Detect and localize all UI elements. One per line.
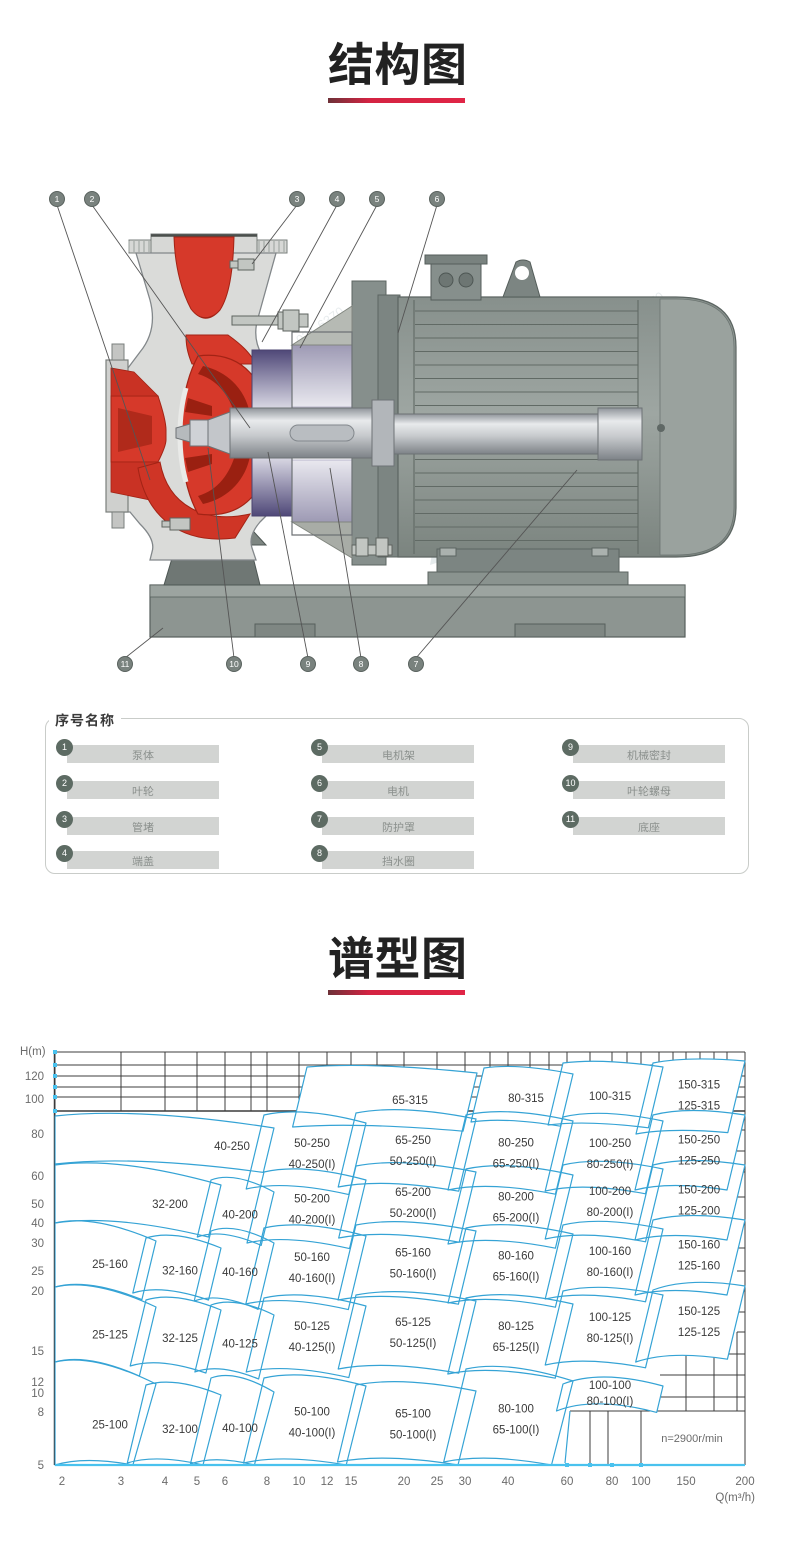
svg-text:150-250: 150-250 bbox=[678, 1135, 720, 1147]
svg-text:100: 100 bbox=[631, 1476, 650, 1488]
svg-text:125-200: 125-200 bbox=[678, 1206, 720, 1218]
svg-text:Q(m³/h): Q(m³/h) bbox=[715, 1492, 755, 1504]
svg-text:25: 25 bbox=[431, 1476, 444, 1488]
svg-text:50-125(I): 50-125(I) bbox=[390, 1338, 437, 1350]
svg-text:8: 8 bbox=[264, 1476, 270, 1488]
svg-text:150-200: 150-200 bbox=[678, 1185, 720, 1197]
svg-text:20: 20 bbox=[398, 1476, 411, 1488]
svg-text:80-200: 80-200 bbox=[498, 1192, 534, 1204]
svg-text:65-250(I): 65-250(I) bbox=[493, 1159, 540, 1171]
svg-text:30: 30 bbox=[31, 1238, 44, 1250]
svg-text:H(m): H(m) bbox=[20, 1046, 46, 1058]
svg-text:3: 3 bbox=[295, 194, 300, 204]
svg-text:60: 60 bbox=[31, 1171, 44, 1183]
svg-text:5: 5 bbox=[375, 194, 380, 204]
svg-text:40-160: 40-160 bbox=[222, 1267, 258, 1279]
svg-text:60: 60 bbox=[561, 1476, 574, 1488]
svg-text:120: 120 bbox=[25, 1071, 44, 1083]
svg-text:80-200(I): 80-200(I) bbox=[587, 1207, 634, 1219]
svg-text:25-125: 25-125 bbox=[92, 1330, 128, 1342]
svg-text:80-315: 80-315 bbox=[508, 1093, 544, 1105]
svg-text:65-200(I): 65-200(I) bbox=[493, 1213, 540, 1225]
svg-text:15: 15 bbox=[31, 1346, 44, 1358]
svg-text:40-100: 40-100 bbox=[222, 1423, 258, 1435]
svg-text:65-100(I): 65-100(I) bbox=[493, 1425, 540, 1437]
svg-text:8: 8 bbox=[38, 1407, 44, 1419]
svg-text:5: 5 bbox=[194, 1476, 200, 1488]
svg-text:40-160(I): 40-160(I) bbox=[289, 1273, 336, 1285]
svg-text:80: 80 bbox=[606, 1476, 619, 1488]
svg-text:5: 5 bbox=[38, 1460, 44, 1472]
svg-text:10: 10 bbox=[293, 1476, 306, 1488]
svg-text:100: 100 bbox=[25, 1094, 44, 1106]
svg-text:100-100: 100-100 bbox=[589, 1380, 631, 1392]
svg-text:150-125: 150-125 bbox=[678, 1306, 720, 1318]
svg-text:125-160: 125-160 bbox=[678, 1261, 720, 1273]
svg-text:65-125(I): 65-125(I) bbox=[493, 1342, 540, 1354]
svg-text:7: 7 bbox=[414, 659, 419, 669]
svg-text:6: 6 bbox=[222, 1476, 228, 1488]
svg-text:n=2900r/min: n=2900r/min bbox=[661, 1433, 722, 1445]
svg-text:40-250: 40-250 bbox=[214, 1141, 250, 1153]
svg-text:30: 30 bbox=[459, 1476, 472, 1488]
svg-text:50-100(I): 50-100(I) bbox=[390, 1430, 437, 1442]
svg-text:50-100: 50-100 bbox=[294, 1407, 330, 1419]
svg-text:50-160: 50-160 bbox=[294, 1252, 330, 1264]
svg-text:80-125: 80-125 bbox=[498, 1321, 534, 1333]
svg-text:200: 200 bbox=[735, 1476, 754, 1488]
svg-text:100-160: 100-160 bbox=[589, 1246, 631, 1258]
svg-text:32-200: 32-200 bbox=[152, 1199, 188, 1211]
svg-text:80-125(I): 80-125(I) bbox=[587, 1333, 634, 1345]
svg-text:40: 40 bbox=[31, 1218, 44, 1230]
svg-text:40-125: 40-125 bbox=[222, 1339, 258, 1351]
svg-text:100-200: 100-200 bbox=[589, 1186, 631, 1198]
svg-text:50-125: 50-125 bbox=[294, 1321, 330, 1333]
svg-text:100-125: 100-125 bbox=[589, 1312, 631, 1324]
svg-text:50-250: 50-250 bbox=[294, 1138, 330, 1150]
svg-text:40-125(I): 40-125(I) bbox=[289, 1342, 336, 1354]
svg-text:50-250(I): 50-250(I) bbox=[390, 1156, 437, 1168]
svg-text:150-315: 150-315 bbox=[678, 1080, 720, 1092]
svg-text:80-100: 80-100 bbox=[498, 1404, 534, 1416]
svg-text:65-160: 65-160 bbox=[395, 1248, 431, 1260]
svg-text:25-160: 25-160 bbox=[92, 1259, 128, 1271]
svg-text:125-315: 125-315 bbox=[678, 1101, 720, 1113]
svg-text:65-315: 65-315 bbox=[392, 1095, 428, 1107]
svg-text:80: 80 bbox=[31, 1129, 44, 1141]
svg-text:65-200: 65-200 bbox=[395, 1187, 431, 1199]
svg-text:10: 10 bbox=[229, 659, 239, 669]
svg-text:65-250: 65-250 bbox=[395, 1135, 431, 1147]
svg-text:6: 6 bbox=[435, 194, 440, 204]
svg-text:2: 2 bbox=[59, 1476, 65, 1488]
svg-text:80-250(I): 80-250(I) bbox=[587, 1159, 634, 1171]
svg-text:65-100: 65-100 bbox=[395, 1409, 431, 1421]
svg-text:2: 2 bbox=[90, 194, 95, 204]
svg-text:12: 12 bbox=[321, 1476, 334, 1488]
svg-text:11: 11 bbox=[121, 659, 130, 669]
svg-text:4: 4 bbox=[162, 1476, 169, 1488]
svg-text:40-200(I): 40-200(I) bbox=[289, 1215, 336, 1227]
svg-text:32-100: 32-100 bbox=[162, 1424, 198, 1436]
svg-text:80-250: 80-250 bbox=[498, 1138, 534, 1150]
svg-text:50-200: 50-200 bbox=[294, 1194, 330, 1206]
svg-text:125-125: 125-125 bbox=[678, 1327, 720, 1339]
svg-text:20: 20 bbox=[31, 1286, 44, 1298]
svg-text:100-315: 100-315 bbox=[589, 1091, 631, 1103]
svg-text:80-160: 80-160 bbox=[498, 1251, 534, 1263]
svg-text:50-160(I): 50-160(I) bbox=[390, 1269, 437, 1281]
svg-text:25-100: 25-100 bbox=[92, 1420, 128, 1432]
svg-text:32-125: 32-125 bbox=[162, 1333, 198, 1345]
svg-text:40-200: 40-200 bbox=[222, 1210, 258, 1222]
svg-text:10: 10 bbox=[31, 1388, 44, 1400]
svg-text:4: 4 bbox=[335, 194, 340, 204]
svg-text:80-160(I): 80-160(I) bbox=[587, 1267, 634, 1279]
svg-text:15: 15 bbox=[345, 1476, 358, 1488]
svg-text:40-250(I): 40-250(I) bbox=[289, 1159, 336, 1171]
svg-text:80-100(I): 80-100(I) bbox=[587, 1396, 634, 1408]
svg-text:65-160(I): 65-160(I) bbox=[493, 1272, 540, 1284]
svg-text:40-100(I): 40-100(I) bbox=[289, 1428, 336, 1440]
svg-text:65-125: 65-125 bbox=[395, 1317, 431, 1329]
svg-text:3: 3 bbox=[118, 1476, 124, 1488]
svg-text:50: 50 bbox=[31, 1199, 44, 1211]
svg-text:50-200(I): 50-200(I) bbox=[390, 1208, 437, 1220]
svg-text:25: 25 bbox=[31, 1266, 44, 1278]
svg-text:9: 9 bbox=[306, 659, 311, 669]
svg-text:150: 150 bbox=[676, 1476, 695, 1488]
svg-text:32-160: 32-160 bbox=[162, 1266, 198, 1278]
svg-text:125-250: 125-250 bbox=[678, 1156, 720, 1168]
svg-text:150-160: 150-160 bbox=[678, 1240, 720, 1252]
svg-text:8: 8 bbox=[359, 659, 364, 669]
svg-text:40: 40 bbox=[502, 1476, 515, 1488]
svg-text:100-250: 100-250 bbox=[589, 1138, 631, 1150]
svg-text:1: 1 bbox=[55, 194, 60, 204]
